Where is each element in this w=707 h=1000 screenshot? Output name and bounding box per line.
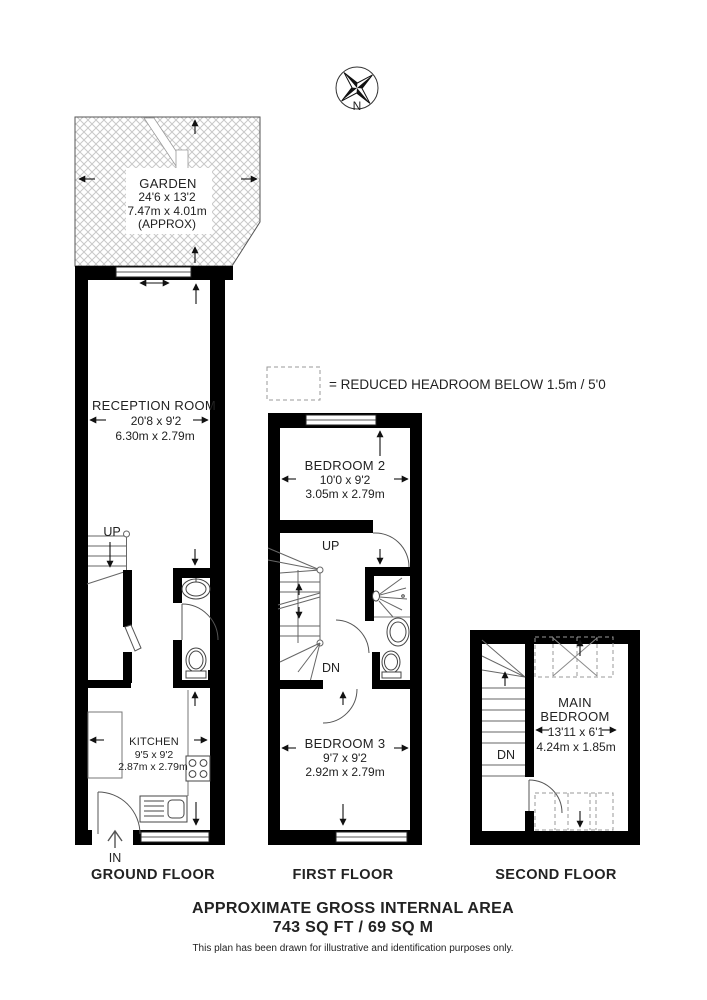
up-label: UP bbox=[322, 539, 339, 553]
bedroom2-name: BEDROOM 2 bbox=[305, 458, 386, 473]
main-bedroom-dims-imperial: 13'11 x 6'1 bbox=[548, 725, 605, 739]
floorplan-page: N GARDEN 24'6 x 13'2 7.47m x 4.01m (APPR… bbox=[0, 0, 707, 1000]
toilet-icon bbox=[186, 648, 206, 678]
floorplan-drawing: N GARDEN 24'6 x 13'2 7.47m x 4.01m (APPR… bbox=[0, 0, 707, 1000]
garden-dims-imperial: 24'6 x 13'2 bbox=[138, 190, 196, 204]
first-floor-plan: UP DN BEDROOM 2 10'0 x 9'2 3.05m x 2.79m… bbox=[268, 413, 422, 883]
reduced-headroom-bottom bbox=[535, 793, 613, 830]
garden-area: GARDEN 24'6 x 13'2 7.47m x 4.01m (APPROX… bbox=[75, 117, 260, 266]
in-label: IN bbox=[109, 851, 122, 865]
main-bedroom-dims-metric: 4.24m x 1.85m bbox=[536, 740, 615, 754]
garden-label: GARDEN 24'6 x 13'2 7.47m x 4.01m (APPROX… bbox=[127, 176, 206, 231]
bedroom3-dims-metric: 2.92m x 2.79m bbox=[305, 765, 384, 779]
main-bedroom-name-line2: BEDROOM bbox=[540, 709, 609, 724]
legend-text: = REDUCED HEADROOM BELOW 1.5m / 5'0 bbox=[329, 377, 606, 392]
kitchen-dims-metric: 2.87m x 2.79m bbox=[118, 761, 188, 773]
dn-label: DN bbox=[497, 748, 515, 762]
first-floor-title: FIRST FLOOR bbox=[292, 867, 393, 883]
bedroom2-dims-metric: 3.05m x 2.79m bbox=[305, 487, 384, 501]
door-arc bbox=[323, 689, 357, 723]
garden-name: GARDEN bbox=[139, 176, 196, 191]
window bbox=[116, 267, 191, 277]
bedroom3-name: BEDROOM 3 bbox=[305, 736, 386, 751]
shower-icon bbox=[373, 578, 408, 617]
first-bathroom bbox=[336, 567, 422, 689]
understairs-closet bbox=[87, 570, 141, 688]
reduced-headroom-legend: = REDUCED HEADROOM BELOW 1.5m / 5'0 bbox=[267, 367, 606, 400]
window bbox=[306, 415, 376, 425]
up-label: UP bbox=[103, 525, 120, 539]
second-floor-title: SECOND FLOOR bbox=[495, 867, 617, 883]
footer: APPROXIMATE GROSS INTERNAL AREA 743 SQ F… bbox=[192, 900, 514, 954]
kitchen-sink-icon bbox=[140, 796, 187, 822]
door-arc bbox=[373, 533, 409, 567]
footer-disclaimer: This plan has been drawn for illustrativ… bbox=[192, 943, 513, 954]
hob-icon bbox=[186, 756, 210, 781]
bedroom3-label: BEDROOM 3 9'7 x 9'2 2.92m x 2.79m bbox=[305, 736, 386, 779]
reception-dims-imperial: 20'8 x 9'2 bbox=[131, 414, 182, 428]
compass-north-label: N bbox=[353, 99, 362, 113]
dn-label: DN bbox=[322, 661, 340, 675]
door-arc bbox=[529, 780, 562, 813]
reception-dims-metric: 6.30m x 2.79m bbox=[115, 429, 194, 443]
entry-door-arc bbox=[98, 792, 140, 834]
kitchen-name: KITCHEN bbox=[129, 736, 179, 748]
kitchen-unit bbox=[88, 712, 122, 778]
footer-area: 743 SQ FT / 69 SQ M bbox=[273, 919, 433, 936]
closet-door bbox=[125, 625, 141, 651]
bedroom3-dims-imperial: 9'7 x 9'2 bbox=[323, 751, 367, 765]
bedroom2-dims-imperial: 10'0 x 9'2 bbox=[320, 473, 371, 487]
door-arc bbox=[336, 620, 369, 653]
ground-floor-title: GROUND FLOOR bbox=[91, 867, 215, 883]
window bbox=[336, 832, 407, 842]
sink-icon bbox=[387, 618, 409, 646]
footer-title: APPROXIMATE GROSS INTERNAL AREA bbox=[192, 900, 514, 917]
bedroom2-label: BEDROOM 2 10'0 x 9'2 3.05m x 2.79m bbox=[305, 458, 386, 501]
sink-icon bbox=[182, 578, 210, 599]
main-bedroom-name-line1: MAIN bbox=[558, 695, 592, 710]
second-floor-plan: DN MAIN BEDROOM 13'11 x 6'1 4.24m x 1.85… bbox=[470, 630, 640, 883]
compass-icon: N bbox=[336, 67, 378, 113]
reception-name: RECEPTION ROOM bbox=[92, 398, 216, 413]
kitchen-label: KITCHEN 9'5 x 9'2 2.87m x 2.79m bbox=[118, 736, 188, 773]
window bbox=[141, 832, 209, 842]
main-bedroom-label: MAIN BEDROOM 13'11 x 6'1 4.24m x 1.85m bbox=[536, 695, 615, 754]
kitchen-dims-imperial: 9'5 x 9'2 bbox=[135, 749, 174, 761]
legend-swatch bbox=[267, 367, 320, 400]
garden-approx: (APPROX) bbox=[138, 217, 196, 231]
toilet-icon bbox=[382, 651, 401, 678]
ground-floor-plan: UP bbox=[75, 266, 233, 883]
garden-dims-metric: 7.47m x 4.01m bbox=[127, 204, 206, 218]
